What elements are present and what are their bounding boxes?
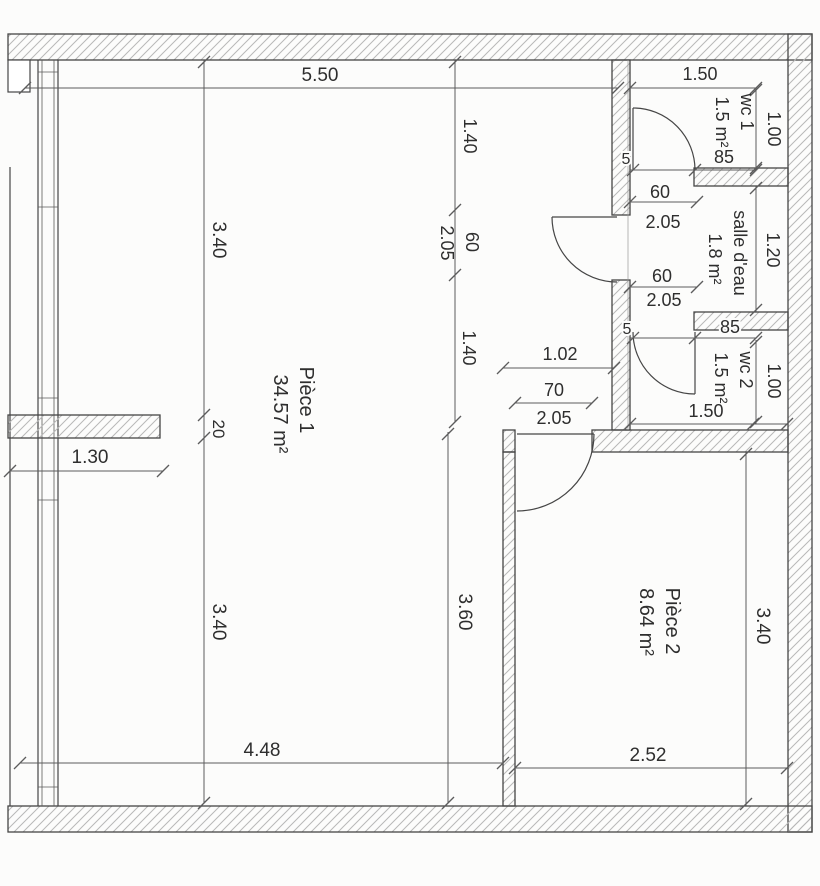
dim-top-width: 5.50 (19, 65, 624, 94)
dim-label-sd-door-bot-h: 2.05 (646, 290, 681, 310)
dim-label-wc2-depth: 1.00 (764, 363, 784, 398)
wall-piece1-bath-lower (612, 280, 630, 430)
floor-plan-sheet: 5.50 1.50 85 5 60 2.05 60 2.05 85 5 1.50 (0, 0, 820, 886)
dim-piece2-right-height: 3.40 (740, 448, 773, 810)
dim-label-p1-bottom: 4.48 (244, 740, 281, 761)
wall-above-piece2-right (592, 430, 788, 452)
dim-label-wc1-width: 1.50 (682, 64, 717, 84)
wall-wc1-salledeau (694, 168, 788, 186)
dim-recess: 1.30 (4, 447, 169, 477)
room-area-wc1: 1.5 m² (712, 96, 732, 147)
dim-mid-column: 1.40 2.05 60 1.40 (437, 56, 482, 428)
wall-salledeau-wc2 (694, 312, 788, 330)
wall-above-piece2-left (503, 430, 515, 452)
dim-label-p2-door-w: 70 (544, 380, 564, 400)
salledeau-door-arc (552, 217, 617, 282)
dim-label-recess: 1.30 (72, 447, 109, 468)
dim-piece2-bottom: 2.52 (509, 745, 793, 774)
dim-label-hall-width: 1.02 (542, 344, 577, 364)
dim-salledeau-depth: 1.20 (750, 182, 783, 316)
dim-label-sd-door-top-w: 60 (650, 182, 670, 202)
dim-piece2-door: 70 2.05 (509, 380, 598, 428)
dim-label-left-upper: 3.40 (208, 222, 229, 259)
dim-label-col-upper: 1.40 (460, 118, 480, 153)
dim-label-wc2-wall: 85 (720, 317, 740, 337)
room-area-piece2: 8.64 m² (635, 588, 657, 656)
dim-wc1-width: 1.50 (624, 64, 762, 94)
dim-label-p2-right-h: 3.40 (752, 608, 773, 645)
floor-plan-drawing: 5.50 1.50 85 5 60 2.05 60 2.05 85 5 1.50 (0, 0, 820, 886)
dim-piece1-bottom: 4.48 (14, 740, 509, 769)
room-label-wc1: wc 1 (737, 92, 757, 130)
dim-label-p2-bottom: 2.52 (630, 745, 667, 766)
dim-label-sd-door-top-h: 2.05 (645, 212, 680, 232)
dim-salledeau-door-bottom: 60 2.05 (624, 266, 703, 310)
dim-label-col-door-h: 2.05 (437, 225, 457, 260)
dim-label-p1-inner-h: 3.60 (454, 594, 475, 631)
wall-bottom (8, 806, 812, 832)
dim-hall-width: 1.02 (497, 344, 620, 374)
dim-label-col-door-w: 60 (462, 232, 482, 252)
room-area-wc2: 1.5 m² (711, 352, 731, 403)
dim-piece1-inner-height: 3.60 (442, 428, 475, 809)
dim-label-stub-thickness: 20 (209, 420, 228, 439)
room-label-wc2: wc 2 (736, 350, 756, 388)
dim-label-col-lower: 1.40 (459, 330, 479, 365)
dim-label-top-width: 5.50 (302, 65, 339, 86)
dim-label-wc2-width: 1.50 (688, 401, 723, 421)
piece2-door-arc (517, 434, 594, 511)
room-label-salledeau: salle d'eau (730, 210, 750, 296)
wall-piece1-piece2 (503, 452, 515, 806)
dim-salledeau-door-top: 60 2.05 (624, 182, 703, 232)
wall-stub-left (8, 415, 160, 438)
dim-label-wc1-wall: 85 (714, 147, 734, 167)
dim-label-wc1-jamb: 5 (622, 151, 631, 168)
wall-top (8, 34, 812, 60)
wall-right (788, 34, 812, 832)
wall-piece1-bath-upper (612, 60, 630, 215)
partition-walls (8, 60, 788, 806)
wc1-door-arc (633, 108, 695, 170)
dim-label-p2-door-h: 2.05 (536, 408, 571, 428)
dim-label-wc2-jamb: 5 (623, 321, 632, 338)
wc2-door-arc (633, 332, 695, 394)
dim-wc2-width: 1.50 (624, 401, 793, 430)
dim-label-sd-door-bot-w: 60 (652, 266, 672, 286)
dim-left-column: 3.40 20 3.40 (198, 56, 229, 809)
dim-label-left-lower: 3.40 (208, 604, 229, 641)
room-label-piece2: Pièce 2 (661, 588, 683, 655)
room-area-piece1: 34.57 m² (269, 375, 291, 454)
room-area-salledeau: 1.8 m² (705, 233, 725, 284)
room-label-piece1: Pièce 1 (295, 367, 317, 434)
dim-label-sd-depth: 1.20 (763, 232, 783, 267)
dim-label-wc1-depth: 1.00 (764, 111, 784, 146)
